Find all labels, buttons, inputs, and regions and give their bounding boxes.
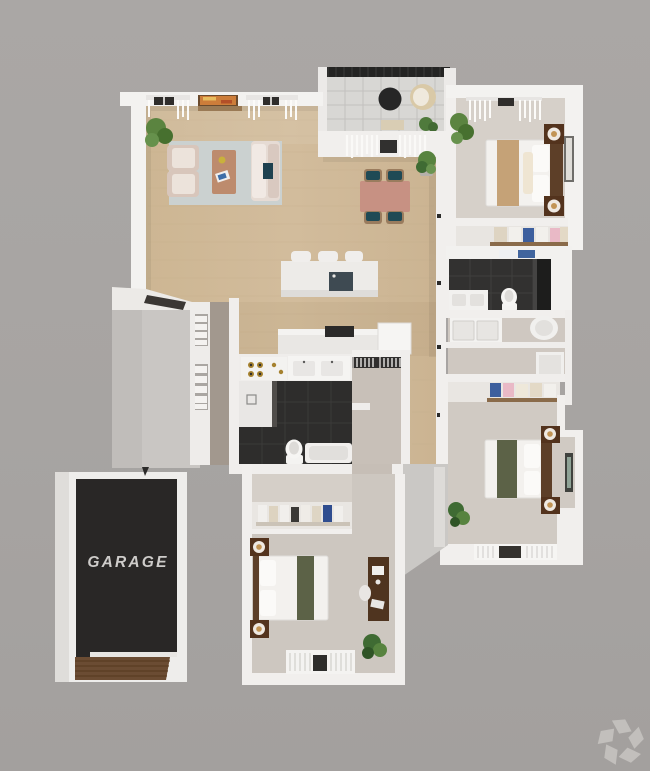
svg-text:GARAGE: GARAGE: [87, 554, 168, 571]
